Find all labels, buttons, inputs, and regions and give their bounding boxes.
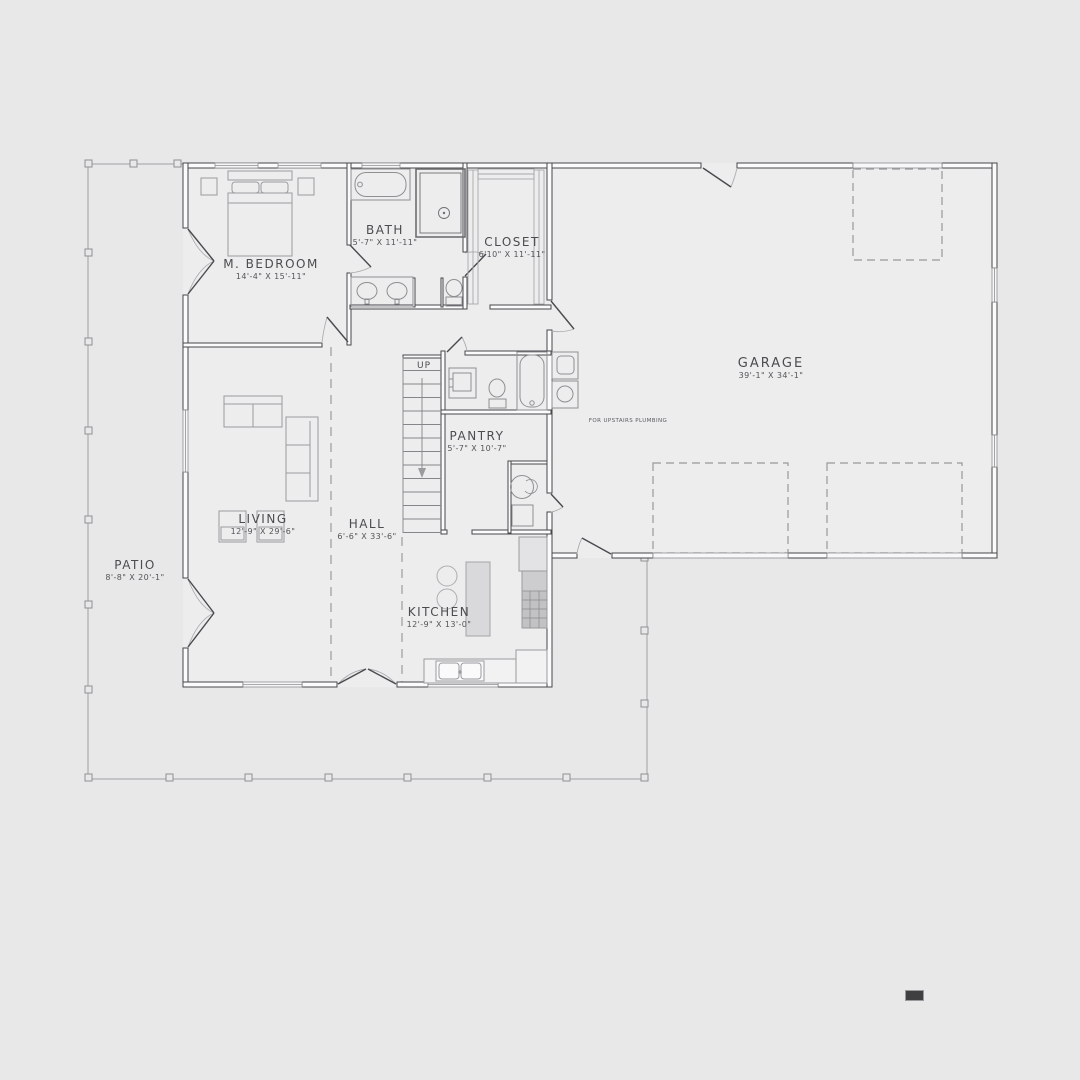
room-dims: 6'-6" X 33'-6" xyxy=(337,531,396,542)
room-label-hall: HALL 6'-6" X 33'-6" xyxy=(337,518,396,542)
room-name: BATH xyxy=(353,224,418,237)
stairs-up-label: UP xyxy=(417,361,431,371)
room-dims: 39'-1" X 34'-1" xyxy=(738,370,804,381)
room-dims: 14'-4" X 15'-11" xyxy=(223,271,319,282)
room-name: LIVING xyxy=(231,513,296,526)
room-label-living: LIVING 12'-9" X 29'-6" xyxy=(231,513,296,537)
room-name: KITCHEN xyxy=(407,606,472,619)
room-label-patio: PATIO 8'-8" X 20'-1" xyxy=(105,559,164,583)
range xyxy=(522,591,547,628)
room-dims: 8'-8" X 20'-1" xyxy=(105,572,164,583)
kitchen-sink xyxy=(436,661,484,681)
plumbing-note: FOR UPSTAIRS PLUMBING xyxy=(589,418,667,424)
room-name: GARAGE xyxy=(738,357,804,370)
room-label-m-bedroom: M. BEDROOM 14'-4" X 15'-11" xyxy=(223,258,319,282)
room-name: PANTRY xyxy=(447,430,506,443)
watermark-logo xyxy=(905,990,924,1001)
house-footprint xyxy=(183,163,997,687)
room-name: M. BEDROOM xyxy=(223,258,319,271)
room-dims: 12'-9" X 13'-0" xyxy=(407,619,472,630)
fridge xyxy=(519,537,547,571)
wall-oven xyxy=(522,571,547,591)
room-name: CLOSET xyxy=(479,236,546,249)
room-label-kitchen: KITCHEN 12'-9" X 13'-0" xyxy=(407,606,472,630)
room-dims: 5'-7" X 10'-7" xyxy=(447,443,506,454)
room-dims: 12'-9" X 29'-6" xyxy=(231,526,296,537)
room-dims: 6'10" X 11'-11" xyxy=(479,249,546,260)
room-label-pantry: PANTRY 5'-7" X 10'-7" xyxy=(447,430,506,454)
room-dims: 5'-7" X 11'-11" xyxy=(353,237,418,248)
room-label-closet: CLOSET 6'10" X 11'-11" xyxy=(479,236,546,260)
room-label-garage: GARAGE 39'-1" X 34'-1" xyxy=(738,357,804,381)
floor-plan: M. BEDROOM 14'-4" X 15'-11" BATH 5'-7" X… xyxy=(0,0,1080,1080)
counter-corner xyxy=(516,650,547,683)
floor-plan-drawing xyxy=(0,0,1080,1080)
room-name: PATIO xyxy=(105,559,164,572)
room-name: HALL xyxy=(337,518,396,531)
room-label-bath: BATH 5'-7" X 11'-11" xyxy=(353,224,418,248)
